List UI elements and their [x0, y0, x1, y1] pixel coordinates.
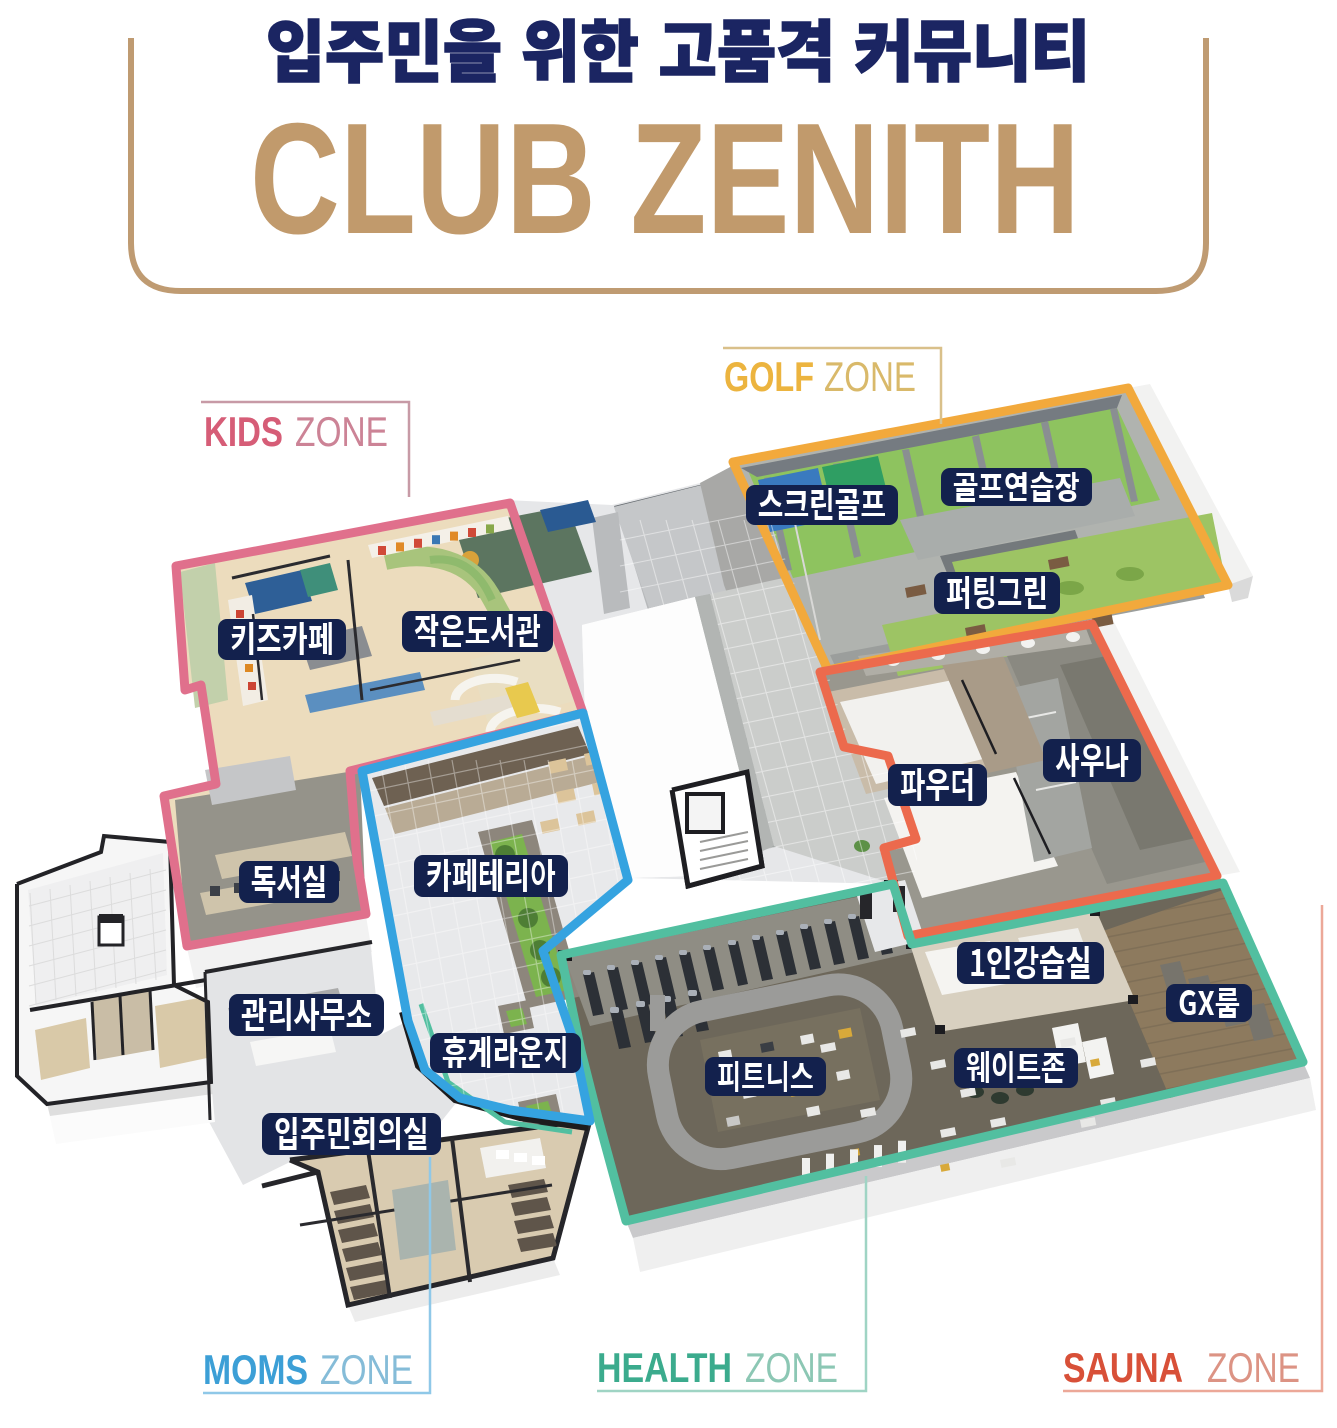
svg-text:HEALTH: HEALTH — [597, 1344, 732, 1391]
svg-text:KIDS: KIDS — [204, 408, 283, 455]
svg-text:ZONE: ZONE — [295, 408, 388, 455]
svg-text:ZONE: ZONE — [1207, 1344, 1300, 1391]
svg-text:MOMS: MOMS — [203, 1346, 308, 1393]
svg-text:ZONE: ZONE — [745, 1344, 838, 1391]
svg-text:SAUNA: SAUNA — [1063, 1344, 1183, 1391]
svg-text:GOLF: GOLF — [724, 353, 814, 400]
svg-text:ZONE: ZONE — [320, 1346, 413, 1393]
svg-text:CLUB ZENITH: CLUB ZENITH — [250, 91, 1080, 267]
svg-text:ZONE: ZONE — [824, 353, 916, 400]
